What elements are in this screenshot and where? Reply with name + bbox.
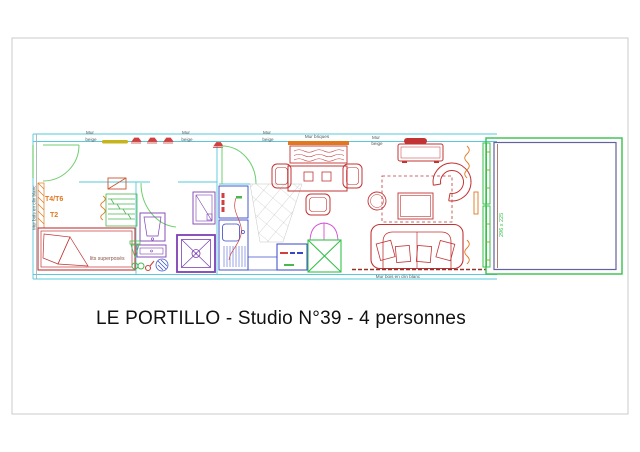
double-swing-door	[310, 223, 338, 240]
drawing-sheet: Mur beige Mur beige Mur beige Mur brique…	[0, 0, 640, 452]
svg-text:beige: beige	[371, 141, 383, 146]
radiator	[101, 196, 106, 220]
electrical-panel	[108, 178, 126, 189]
side-table	[368, 192, 386, 210]
window-x-box	[308, 240, 341, 272]
wall-label-top-5: Mur beige	[371, 135, 383, 146]
floor-plan: Mur beige Mur beige Mur beige Mur brique…	[0, 0, 640, 452]
brick-wall-bar	[288, 141, 349, 145]
svg-text:beige: beige	[85, 137, 97, 142]
wall-label-top-1: Mur beige	[85, 130, 97, 142]
svg-text:Mur: Mur	[86, 130, 94, 135]
dining-chair-right	[343, 164, 362, 188]
wall-label-top-3: Mur beige	[262, 130, 274, 142]
sideboard	[290, 146, 347, 163]
tv-mount	[404, 138, 427, 144]
hatched-wall	[38, 183, 44, 228]
plan-title: LE PORTILLO - Studio N°39 - 4 personnes	[96, 308, 466, 330]
coffee-table	[398, 193, 433, 219]
entry-door	[43, 145, 79, 181]
rug	[382, 176, 452, 222]
dining-chair-bottom	[306, 194, 330, 215]
bunk-bed	[38, 228, 135, 270]
balcony-dimension-label: 296 x 225	[499, 213, 505, 237]
unit-type-label-1: T4/T6	[45, 196, 63, 203]
svg-text:Mur: Mur	[263, 130, 271, 135]
hairdryer	[146, 261, 155, 271]
kitchen-fridge	[277, 244, 307, 270]
svg-text:Mur: Mur	[182, 130, 190, 135]
svg-text:beige: beige	[181, 137, 193, 142]
wall-label-top-2: Mur beige	[181, 130, 193, 142]
light-bar	[102, 140, 128, 144]
ceiling-lights	[131, 138, 223, 148]
wall-label-top-4: Mur briques	[305, 134, 330, 139]
tv	[398, 144, 443, 163]
wall-label-bottom: Mur bois en clin blanc	[376, 274, 421, 279]
floor-tile-grid	[250, 184, 302, 242]
svg-text:beige: beige	[262, 137, 274, 142]
balcony	[486, 138, 622, 274]
shower	[177, 235, 215, 272]
vanity-drawer	[137, 245, 166, 257]
mirror-cabinet	[193, 192, 215, 224]
sheet-border	[12, 38, 628, 414]
towel-rings	[132, 263, 144, 269]
svg-text:Mur briques: Mur briques	[305, 134, 330, 139]
closet	[106, 194, 137, 226]
svg-text:Mur: Mur	[372, 135, 380, 140]
kitchen-tall-unit	[219, 186, 248, 218]
sofa	[371, 225, 463, 269]
kitchen-door	[222, 146, 256, 184]
bathroom-door	[141, 183, 176, 227]
wall-label-left: Mur bois en clin blanc	[32, 185, 37, 230]
bed-label: lits superposés	[90, 256, 125, 262]
kitchen-counter	[248, 257, 277, 270]
stool	[156, 259, 168, 271]
washbasin	[140, 213, 165, 241]
unit-type-label-2: T2	[50, 212, 58, 219]
